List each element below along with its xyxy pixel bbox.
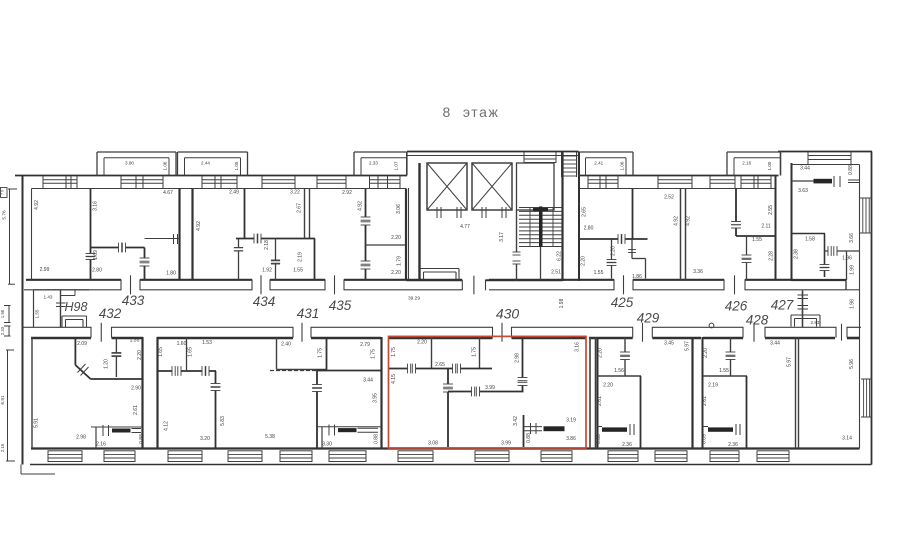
svg-text:1.60: 1.60 xyxy=(177,341,187,347)
svg-text:0.88: 0.88 xyxy=(139,434,145,444)
svg-text:5.91: 5.91 xyxy=(34,418,40,428)
svg-text:1.96: 1.96 xyxy=(842,256,852,262)
svg-text:4.77: 4.77 xyxy=(460,224,470,230)
svg-text:1.53: 1.53 xyxy=(202,340,212,346)
svg-text:0.88: 0.88 xyxy=(848,165,854,175)
svg-text:1.07: 1.07 xyxy=(393,161,398,170)
svg-text:2.36: 2.36 xyxy=(622,442,632,448)
svg-text:3.17: 3.17 xyxy=(499,232,505,242)
svg-text:2.52: 2.52 xyxy=(664,195,674,201)
svg-text:429: 429 xyxy=(637,311,660,326)
svg-text:1.69: 1.69 xyxy=(93,250,99,260)
svg-text:2.09: 2.09 xyxy=(77,341,87,347)
svg-text:2.80: 2.80 xyxy=(584,226,594,232)
svg-text:1.98: 1.98 xyxy=(0,309,5,318)
svg-text:2.20: 2.20 xyxy=(603,383,613,389)
svg-text:2.33: 2.33 xyxy=(369,161,378,166)
svg-text:3.44: 3.44 xyxy=(770,341,780,347)
svg-text:1.92: 1.92 xyxy=(262,268,272,274)
svg-text:6.91: 6.91 xyxy=(0,395,6,405)
svg-text:3.66: 3.66 xyxy=(849,233,855,243)
svg-text:1.06: 1.06 xyxy=(620,161,625,170)
svg-text:433: 433 xyxy=(122,293,145,308)
svg-text:1.55: 1.55 xyxy=(293,268,303,274)
svg-text:2.98: 2.98 xyxy=(76,435,86,441)
svg-text:2.83: 2.83 xyxy=(811,320,820,325)
svg-text:3.19: 3.19 xyxy=(566,418,576,424)
svg-text:6.22: 6.22 xyxy=(557,251,563,261)
svg-text:1.55: 1.55 xyxy=(35,309,40,318)
svg-text:1.75: 1.75 xyxy=(472,347,478,357)
svg-text:1.98: 1.98 xyxy=(559,298,565,308)
svg-text:2.51: 2.51 xyxy=(551,270,561,276)
svg-text:432: 432 xyxy=(99,306,122,321)
svg-text:2.38: 2.38 xyxy=(794,249,800,259)
svg-text:2.40: 2.40 xyxy=(281,342,291,348)
svg-text:2.36: 2.36 xyxy=(728,442,738,448)
svg-text:2.49: 2.49 xyxy=(229,190,239,196)
svg-text:5.97: 5.97 xyxy=(787,357,793,367)
svg-text:3.45: 3.45 xyxy=(664,341,674,347)
svg-text:2.20: 2.20 xyxy=(703,348,709,358)
svg-text:2.20: 2.20 xyxy=(598,348,604,358)
svg-text:0.88: 0.88 xyxy=(596,434,602,444)
svg-text:2.16: 2.16 xyxy=(742,161,751,166)
svg-text:4.92: 4.92 xyxy=(358,201,364,211)
svg-text:0.88: 0.88 xyxy=(526,433,532,443)
svg-text:3.44: 3.44 xyxy=(800,166,810,172)
svg-text:1.20: 1.20 xyxy=(104,359,110,369)
svg-text:3.99: 3.99 xyxy=(485,385,495,391)
svg-text:2.65: 2.65 xyxy=(582,207,588,217)
svg-text:3.80: 3.80 xyxy=(125,161,134,166)
svg-text:1.79: 1.79 xyxy=(397,256,403,266)
svg-text:1.98: 1.98 xyxy=(850,299,856,309)
svg-text:3.08: 3.08 xyxy=(428,441,438,447)
svg-text:2.19: 2.19 xyxy=(708,383,718,389)
svg-text:3.20: 3.20 xyxy=(200,436,210,442)
svg-text:2.92: 2.92 xyxy=(342,190,352,196)
svg-text:2.16: 2.16 xyxy=(0,443,5,452)
svg-text:1.05: 1.05 xyxy=(234,161,239,170)
svg-text:Н98: Н98 xyxy=(65,300,88,314)
svg-text:1.58: 1.58 xyxy=(805,237,815,243)
svg-text:5.83: 5.83 xyxy=(220,416,226,426)
svg-text:4.67: 4.67 xyxy=(163,190,173,196)
svg-text:2.16: 2.16 xyxy=(96,442,106,448)
svg-text:1.80: 1.80 xyxy=(166,271,176,277)
svg-text:1.75: 1.75 xyxy=(391,347,397,357)
svg-text:1.55: 1.55 xyxy=(752,237,762,243)
svg-text:1.06: 1.06 xyxy=(163,161,168,170)
svg-text:3.16: 3.16 xyxy=(93,201,99,211)
svg-text:3.30: 3.30 xyxy=(322,442,332,448)
svg-text:2.20: 2.20 xyxy=(391,270,401,276)
svg-text:0.89: 0.89 xyxy=(702,434,708,444)
svg-text:1.43: 1.43 xyxy=(44,295,53,300)
svg-text:2.33: 2.33 xyxy=(0,326,5,335)
svg-text:435: 435 xyxy=(329,298,352,313)
svg-text:1.55: 1.55 xyxy=(130,338,140,344)
svg-text:5.38: 5.38 xyxy=(265,434,275,440)
svg-text:2.18: 2.18 xyxy=(264,240,270,250)
svg-text:2.20: 2.20 xyxy=(417,340,427,346)
svg-text:4.92: 4.92 xyxy=(196,221,202,231)
svg-text:2.90: 2.90 xyxy=(131,386,141,392)
svg-text:2.44: 2.44 xyxy=(201,161,210,166)
svg-text:4.15: 4.15 xyxy=(391,374,397,384)
svg-text:3.06: 3.06 xyxy=(396,204,402,214)
svg-text:2.99: 2.99 xyxy=(40,267,50,273)
svg-text:39.29: 39.29 xyxy=(408,296,420,302)
svg-text:5.76: 5.76 xyxy=(2,210,8,220)
svg-text:428: 428 xyxy=(746,313,769,328)
svg-text:3.36: 3.36 xyxy=(693,269,703,275)
svg-text:4.92: 4.92 xyxy=(34,200,40,210)
svg-text:1.55: 1.55 xyxy=(719,368,729,374)
svg-text:3.95: 3.95 xyxy=(373,393,379,403)
svg-text:3.16: 3.16 xyxy=(575,342,581,352)
svg-text:2.61: 2.61 xyxy=(702,396,708,406)
svg-text:1.75: 1.75 xyxy=(371,349,377,359)
svg-text:2.19: 2.19 xyxy=(298,252,304,262)
svg-text:3.63: 3.63 xyxy=(798,188,808,194)
svg-text:4.12: 4.12 xyxy=(164,421,170,431)
svg-text:1.99: 1.99 xyxy=(850,265,856,275)
svg-text:4.92: 4.92 xyxy=(686,216,692,226)
svg-text:3.42: 3.42 xyxy=(513,416,519,426)
svg-text:434: 434 xyxy=(253,294,276,309)
svg-text:2.28: 2.28 xyxy=(769,251,775,261)
svg-text:5.97: 5.97 xyxy=(685,341,691,351)
svg-text:2.20: 2.20 xyxy=(137,350,143,360)
svg-text:3.44: 3.44 xyxy=(363,378,373,384)
svg-text:3.99: 3.99 xyxy=(501,441,511,447)
svg-text:2.67: 2.67 xyxy=(297,203,303,213)
svg-text:3.22: 3.22 xyxy=(290,190,300,196)
svg-text:431: 431 xyxy=(297,306,320,321)
svg-text:4.92: 4.92 xyxy=(674,216,680,226)
svg-text:5.96: 5.96 xyxy=(849,359,855,369)
svg-text:2.79: 2.79 xyxy=(360,342,370,348)
svg-text:430: 430 xyxy=(496,306,520,322)
svg-text:2.41: 2.41 xyxy=(594,161,603,166)
svg-text:2.80: 2.80 xyxy=(92,268,102,274)
svg-text:2.55: 2.55 xyxy=(768,205,774,215)
svg-text:427: 427 xyxy=(771,298,794,313)
svg-text:1.65: 1.65 xyxy=(158,347,164,357)
svg-text:425: 425 xyxy=(611,295,634,310)
svg-text:2.20: 2.20 xyxy=(611,246,617,256)
svg-text:1.86: 1.86 xyxy=(632,274,642,280)
svg-text:3.86: 3.86 xyxy=(566,436,576,442)
svg-text:1.05: 1.05 xyxy=(767,161,772,170)
svg-text:2.20: 2.20 xyxy=(391,235,401,241)
svg-text:1.56: 1.56 xyxy=(614,368,624,374)
svg-text:7.0: 7.0 xyxy=(1,190,5,195)
svg-text:2.65: 2.65 xyxy=(435,362,445,368)
svg-text:2.11: 2.11 xyxy=(761,224,771,230)
svg-text:2.61: 2.61 xyxy=(133,405,139,415)
svg-text:2.61: 2.61 xyxy=(597,396,603,406)
svg-text:2.98: 2.98 xyxy=(515,353,521,363)
svg-text:0.88: 0.88 xyxy=(374,434,380,444)
svg-text:1.65: 1.65 xyxy=(188,347,194,357)
svg-text:3.14: 3.14 xyxy=(842,436,852,442)
svg-text:1.55: 1.55 xyxy=(594,270,604,276)
svg-text:1.75: 1.75 xyxy=(318,348,324,358)
svg-text:2.20: 2.20 xyxy=(581,256,587,266)
svg-text:8 этаж: 8 этаж xyxy=(442,104,499,120)
svg-text:426: 426 xyxy=(725,299,748,314)
